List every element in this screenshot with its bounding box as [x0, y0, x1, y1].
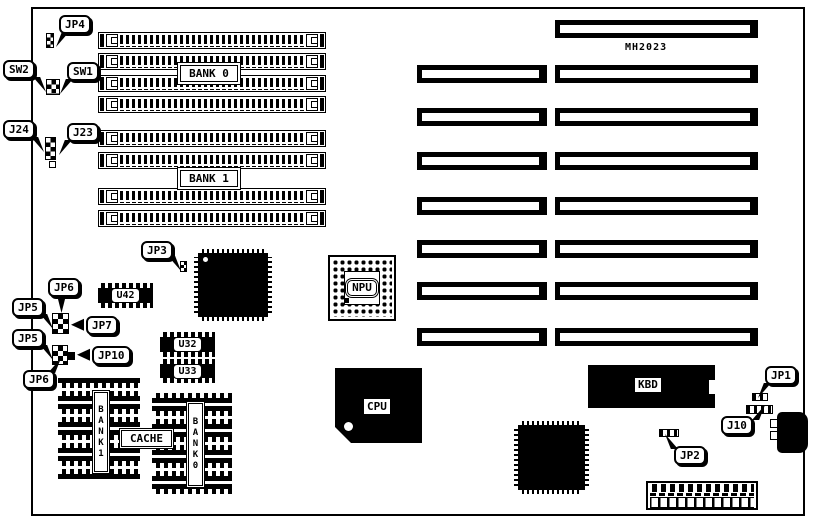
- j24-pin: [49, 161, 56, 168]
- simm-clip-icon: [306, 34, 318, 47]
- simm-clip-icon: [106, 212, 118, 225]
- cache-chip: [58, 378, 140, 388]
- din-pin: [770, 419, 778, 428]
- callout-jp5-upper: JP5: [12, 298, 44, 317]
- callout-jp5-label: JP5: [18, 332, 38, 345]
- callout-jp10-label: JP10: [98, 349, 125, 362]
- callout-j23-label: J23: [73, 126, 93, 139]
- callout-jp6-lower: JP6: [23, 370, 55, 389]
- simm-end-bar: [100, 132, 104, 145]
- kbd-notch: [709, 380, 715, 394]
- callout-sw2: SW2: [3, 60, 35, 79]
- callout-jp4-label: JP4: [65, 18, 85, 31]
- simm-clip-icon: [106, 154, 118, 167]
- callout-j24: J24: [3, 120, 35, 139]
- simm-pins: [120, 98, 304, 111]
- simm-clip-icon: [306, 212, 318, 225]
- simm-clip-icon: [306, 190, 318, 203]
- isa-slot-long: [555, 240, 758, 258]
- callout-jp3-label: JP3: [147, 244, 167, 257]
- isa-slot-short: [417, 328, 547, 346]
- cache-bank0-label: BANK0: [188, 403, 203, 486]
- simm-socket: [98, 96, 326, 113]
- isa-slot-long: [555, 152, 758, 170]
- u33-label: U33: [173, 364, 201, 379]
- simm-end-bar: [100, 55, 104, 68]
- simm-end-bar: [100, 190, 104, 203]
- cache-label: CACHE: [121, 430, 172, 447]
- pin1-dot: [344, 298, 349, 303]
- simm-end-bar: [100, 77, 104, 90]
- pin1-dot: [203, 257, 208, 262]
- callout-jp5-label: JP5: [18, 301, 38, 314]
- chip-u42: U42: [98, 283, 153, 308]
- npu-well: NPU: [344, 271, 380, 305]
- keyboard-din-connector: [777, 412, 808, 453]
- callout-jp2: JP2: [674, 446, 706, 465]
- simm-end-bar: [100, 154, 104, 167]
- callout-sw2-label: SW2: [9, 63, 29, 76]
- jp5-jp6-jp10-block: [52, 345, 68, 365]
- callout-jp6-label: JP6: [54, 281, 74, 294]
- cache-chip: [152, 393, 232, 403]
- power-pin-sockets: [650, 497, 754, 508]
- callout-jp7: JP7: [86, 316, 118, 335]
- callout-jp1: JP1: [765, 366, 797, 385]
- simm-pins: [120, 132, 304, 145]
- power-pins: [650, 484, 754, 492]
- jp4-jumper: [46, 33, 54, 48]
- power-pin-bar: [650, 493, 754, 496]
- callout-j10-label: J10: [727, 419, 747, 432]
- simm-clip-icon: [306, 55, 318, 68]
- simm-clip-icon: [106, 34, 118, 47]
- simm-clip-icon: [306, 98, 318, 111]
- isa-slot-long: [555, 65, 758, 83]
- isa-slot-long: [555, 20, 758, 38]
- isa-slot-short: [417, 65, 547, 83]
- pin1-dot: [344, 422, 353, 431]
- isa-slot-short: [417, 152, 547, 170]
- simm-clip-icon: [306, 77, 318, 90]
- simm-clip-icon: [106, 132, 118, 145]
- bank1-label: BANK 1: [180, 170, 238, 187]
- isa-slot-long: [555, 197, 758, 215]
- callout-jp10: JP10: [92, 346, 131, 365]
- callout-jp7-label: JP7: [92, 319, 112, 332]
- simm-pins: [120, 190, 304, 203]
- simm-pins: [120, 154, 304, 167]
- simm-socket: [98, 210, 326, 227]
- din-pin: [770, 431, 778, 440]
- callout-jp1-label: JP1: [771, 369, 791, 382]
- j23-j24-jumper: [45, 137, 56, 160]
- cpu-label: CPU: [363, 398, 391, 415]
- npu-label: NPU: [347, 280, 377, 296]
- simm-pins: [120, 212, 304, 225]
- u32-label: U32: [173, 337, 201, 352]
- isa-slot-short: [417, 282, 547, 300]
- callout-jp6-label: JP6: [29, 373, 49, 386]
- simm-clip-icon: [106, 77, 118, 90]
- chip-u32: U32: [160, 332, 215, 357]
- simm-socket: [98, 130, 326, 147]
- simm-end-bar: [320, 132, 324, 145]
- isa-slot-short: [417, 197, 547, 215]
- u42-label: U42: [111, 288, 139, 303]
- callout-j24-label: J24: [9, 123, 29, 136]
- jp5-jp6-jp7-block: [52, 313, 69, 334]
- simm-socket: [98, 32, 326, 49]
- simm-end-bar: [320, 190, 324, 203]
- callout-jp5-lower: JP5: [12, 329, 44, 348]
- simm-end-bar: [320, 98, 324, 111]
- callout-sw1: SW1: [67, 62, 99, 81]
- callout-j23: J23: [67, 123, 99, 142]
- simm-socket: [98, 188, 326, 205]
- simm-socket: [98, 152, 326, 169]
- callout-jp6-upper: JP6: [48, 278, 80, 297]
- power-connector: [646, 481, 758, 510]
- isa-slot-long: [555, 108, 758, 126]
- simm-clip-icon: [306, 154, 318, 167]
- simm-end-bar: [100, 98, 104, 111]
- simm-end-bar: [100, 34, 104, 47]
- kbd-chip: KBD: [588, 365, 715, 408]
- simm-clip-icon: [106, 98, 118, 111]
- simm-clip-icon: [306, 132, 318, 145]
- callout-sw1-label: SW1: [73, 65, 93, 78]
- bank0-label: BANK 0: [180, 65, 238, 82]
- simm-clip-icon: [106, 55, 118, 68]
- chip-u33: U33: [160, 359, 215, 383]
- isa-slot-long: [555, 328, 758, 346]
- qfp-body: [198, 253, 268, 317]
- callout-jp2-label: JP2: [680, 449, 700, 462]
- board-model-label: MH2023: [625, 42, 667, 53]
- cpu-chip: CPU: [335, 368, 422, 443]
- chipset-qfp: [194, 249, 272, 321]
- simm-end-bar: [320, 154, 324, 167]
- simm-clip-icon: [106, 190, 118, 203]
- callout-jp4: JP4: [59, 15, 91, 34]
- jp10-pin: [68, 352, 75, 360]
- callout-j10: J10: [721, 416, 753, 435]
- simm-end-bar: [320, 77, 324, 90]
- qfp-body: [518, 425, 585, 490]
- npu-socket: NPU: [328, 255, 396, 321]
- jp2-jumper: [659, 429, 679, 437]
- isa-slot-long: [555, 282, 758, 300]
- simm-end-bar: [320, 34, 324, 47]
- simm-pins: [120, 34, 304, 47]
- isa-slot-short: [417, 108, 547, 126]
- simm-end-bar: [320, 212, 324, 225]
- simm-end-bar: [320, 55, 324, 68]
- sw1-sw2-switch: [46, 79, 60, 95]
- io-qfp: [514, 421, 589, 494]
- motherboard-diagram: BANK 0 BANK 1 MH2023 JP4 SW2 SW1 J24 J23…: [0, 0, 814, 527]
- isa-slot-short: [417, 240, 547, 258]
- simm-end-bar: [100, 212, 104, 225]
- cache-bank1-label: BANK1: [94, 392, 108, 472]
- callout-jp3: JP3: [141, 241, 173, 260]
- jp3-jumper: [180, 261, 187, 272]
- kbd-label: KBD: [635, 378, 661, 392]
